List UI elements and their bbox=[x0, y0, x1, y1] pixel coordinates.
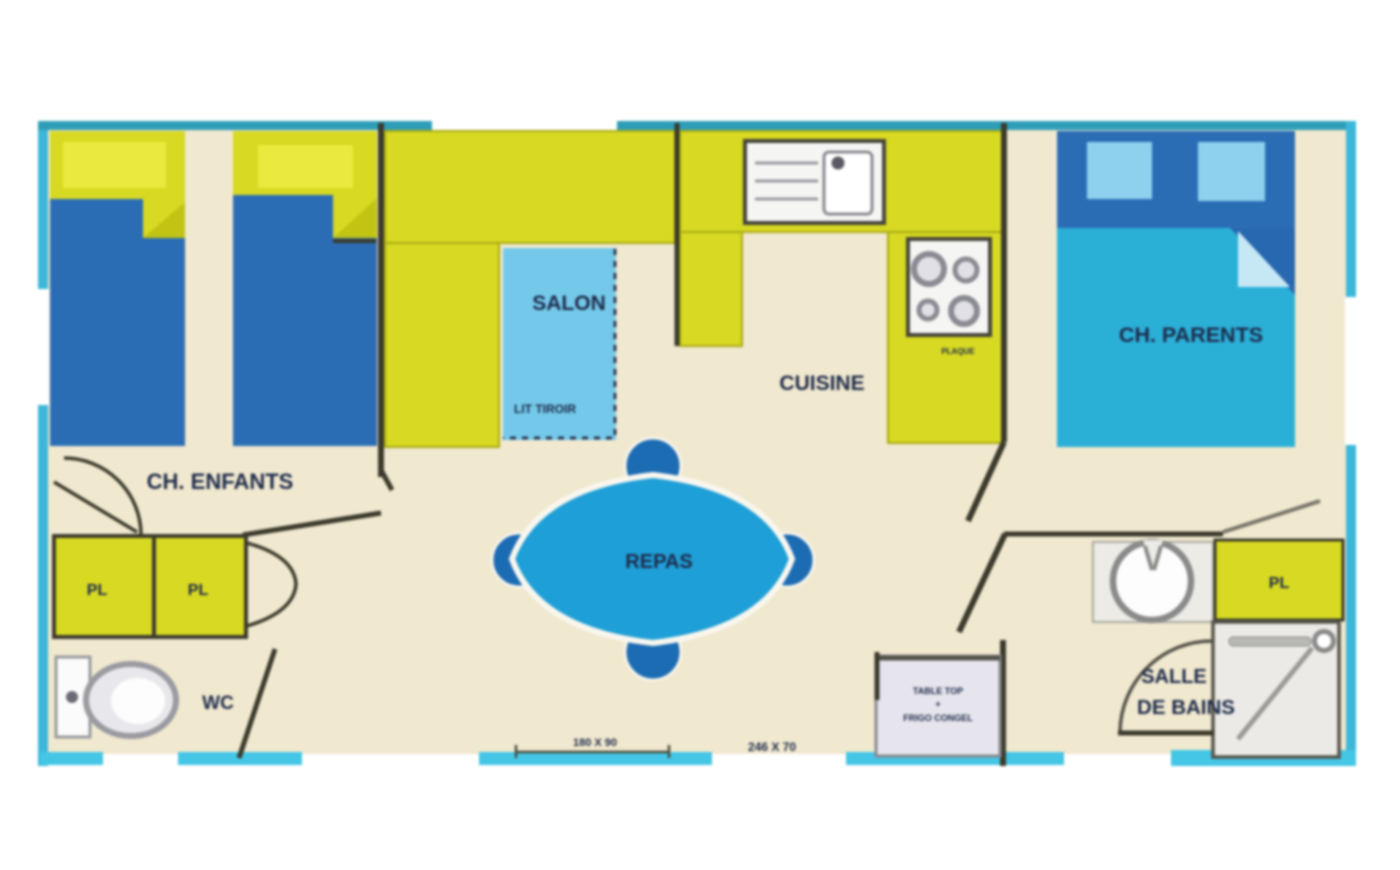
svg-text:WC: WC bbox=[202, 693, 234, 714]
svg-text:180 X 90: 180 X 90 bbox=[573, 737, 617, 749]
svg-text:PL: PL bbox=[1269, 575, 1290, 592]
svg-text:CH. ENFANTS: CH. ENFANTS bbox=[147, 469, 294, 494]
svg-text:PL: PL bbox=[87, 582, 108, 599]
svg-text:LIT TIROIR: LIT TIROIR bbox=[514, 402, 576, 416]
svg-text:SALLE: SALLE bbox=[1141, 666, 1207, 688]
svg-text:PLAQUE: PLAQUE bbox=[941, 347, 975, 356]
svg-text:CH. PARENTS: CH. PARENTS bbox=[1119, 323, 1263, 347]
svg-text:TABLE TOP: TABLE TOP bbox=[913, 686, 963, 696]
svg-text:REPAS: REPAS bbox=[625, 551, 692, 573]
svg-text:+: + bbox=[935, 699, 940, 709]
svg-text:CUISINE: CUISINE bbox=[779, 372, 864, 395]
svg-text:PL: PL bbox=[188, 582, 209, 599]
svg-text:FRIGO CONGEL: FRIGO CONGEL bbox=[903, 713, 973, 723]
svg-text:246 X 70: 246 X 70 bbox=[748, 740, 796, 754]
svg-text:SALON: SALON bbox=[532, 292, 606, 315]
svg-text:DE BAINS: DE BAINS bbox=[1137, 696, 1235, 719]
